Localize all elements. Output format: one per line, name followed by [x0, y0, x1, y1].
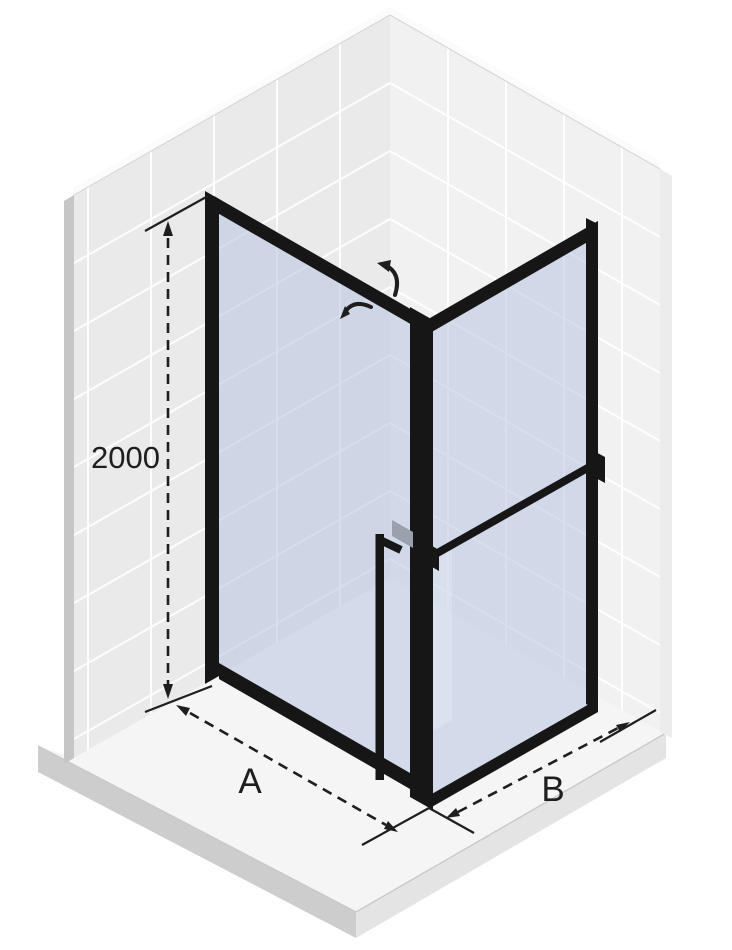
- shower-enclosure-diagram: 2000 A B: [0, 0, 732, 950]
- side-glass-reflection: [433, 549, 452, 731]
- height-dimension-label: 2000: [91, 440, 160, 475]
- handle-bar: [376, 534, 385, 780]
- depth-dimension-label: B: [541, 770, 564, 809]
- door-hinge-wall-profile: [205, 191, 219, 684]
- side-glass-panel: [431, 240, 588, 796]
- width-dimension-label: A: [238, 762, 262, 801]
